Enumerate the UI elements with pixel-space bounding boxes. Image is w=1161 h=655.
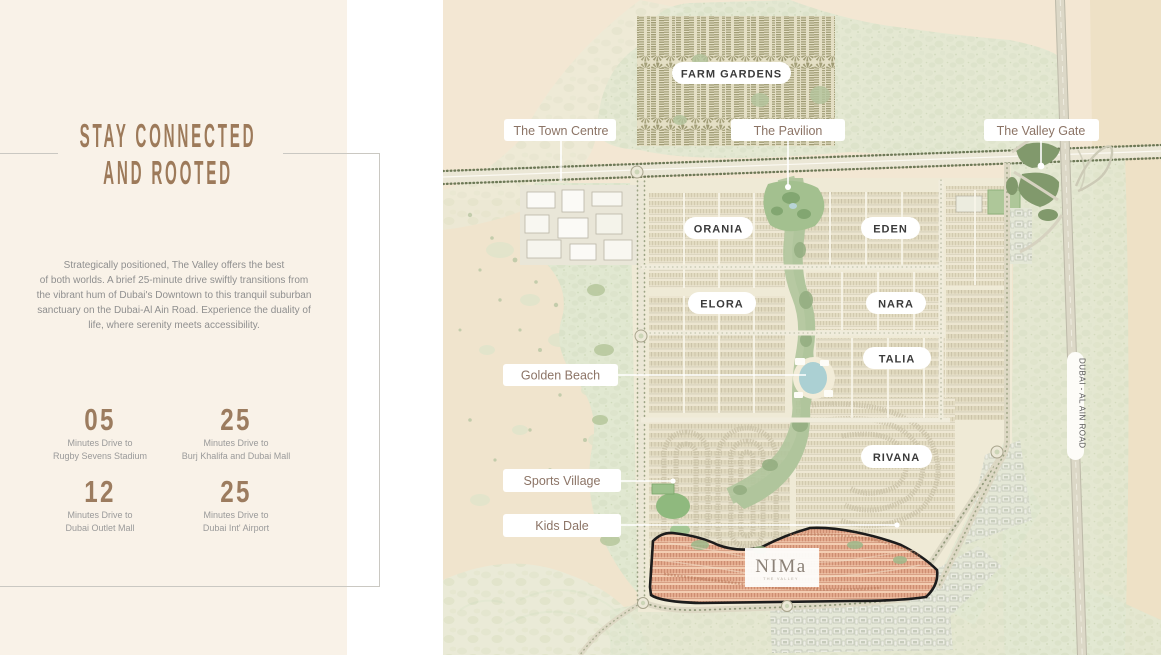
svg-text:Kids Dale: Kids Dale [535,519,589,533]
svg-text:The Valley Gate: The Valley Gate [997,124,1086,138]
svg-text:The Pavilion: The Pavilion [754,124,823,138]
svg-text:NIMa: NIMa [755,556,806,577]
svg-text:FARM GARDENS: FARM GARDENS [681,69,782,81]
svg-text:ORANIA: ORANIA [694,224,743,236]
svg-text:ELORA: ELORA [700,299,744,311]
svg-text:NARA: NARA [878,299,914,311]
svg-text:EDEN: EDEN [873,224,908,236]
svg-text:Sports Village: Sports Village [524,474,601,488]
svg-text:TALIA: TALIA [879,354,916,366]
svg-text:The Town Centre: The Town Centre [514,124,609,138]
svg-text:THE VALLEY: THE VALLEY [763,577,799,581]
svg-text:RIVANA: RIVANA [873,452,920,464]
svg-text:Golden Beach: Golden Beach [521,369,600,383]
svg-text:DUBAI - AL AIN ROAD: DUBAI - AL AIN ROAD [1078,358,1087,449]
